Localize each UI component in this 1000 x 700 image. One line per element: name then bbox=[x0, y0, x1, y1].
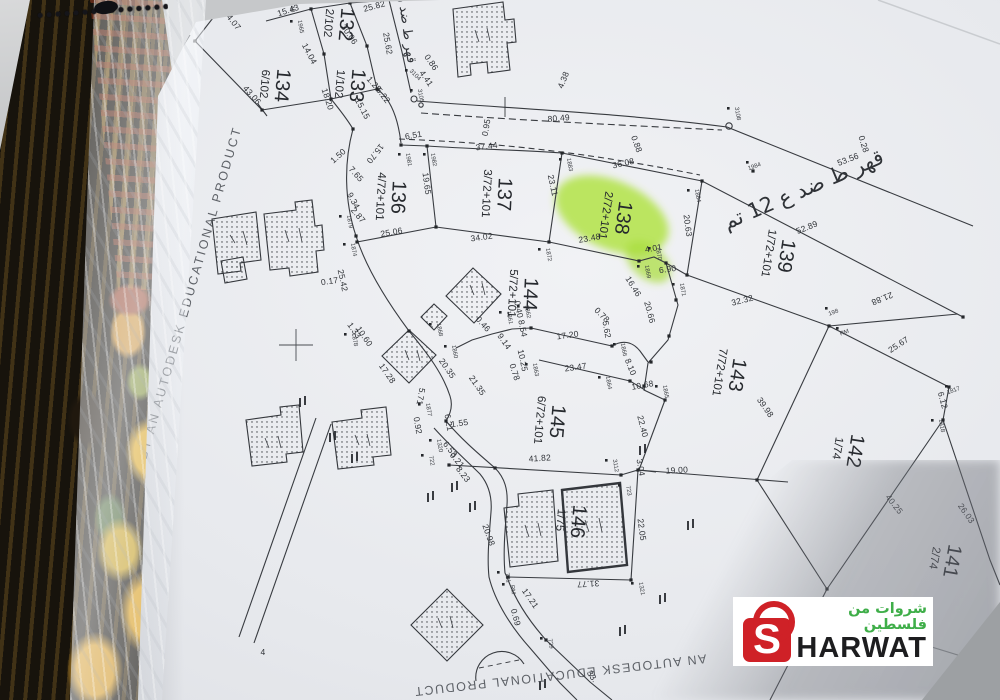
point-label: 723 bbox=[624, 485, 632, 497]
vertex-marker bbox=[687, 189, 690, 192]
dimension-label: 25.82 bbox=[362, 0, 386, 14]
parcel-number: 134 bbox=[270, 68, 295, 103]
dimension-label: 0.92 bbox=[412, 416, 425, 435]
vertex-marker bbox=[434, 225, 437, 228]
building bbox=[221, 257, 247, 283]
vertex-marker bbox=[447, 463, 450, 466]
dimension-label: 8.54 bbox=[516, 319, 529, 338]
point-label: 1877 bbox=[424, 403, 432, 418]
vertex-marker bbox=[309, 7, 312, 10]
vertex-marker bbox=[618, 484, 621, 487]
point-label: 1866 bbox=[619, 343, 627, 358]
parcel-number: 136 bbox=[386, 180, 410, 214]
point-label: 1864 bbox=[604, 376, 612, 391]
vertex-marker bbox=[421, 454, 424, 457]
dimension-label: 19.00 bbox=[665, 464, 688, 475]
vertex-marker bbox=[544, 638, 547, 641]
vertex-marker bbox=[931, 419, 934, 422]
point-label: 1320 bbox=[435, 439, 443, 454]
vertex-marker bbox=[945, 385, 948, 388]
vertex-marker bbox=[339, 215, 342, 218]
dimension-label: 0.88 bbox=[629, 134, 644, 154]
road-label-arabic: قهر ط ضد ر bbox=[394, 0, 418, 64]
parcel-label-134: 1346/102 bbox=[257, 67, 295, 103]
parcel-label-136: 1364/72+101 bbox=[373, 172, 410, 222]
parcel-fraction: 6/102 bbox=[257, 69, 271, 99]
parcel-number: 146 bbox=[566, 504, 591, 539]
dimension-label: 8.10 bbox=[623, 357, 639, 377]
dimension-label: 25.06 bbox=[380, 225, 404, 239]
vertex-marker bbox=[506, 575, 509, 578]
dimension-label: 80.49 bbox=[547, 112, 570, 124]
dimension-label: 22.05 bbox=[635, 518, 648, 542]
vertex-marker bbox=[655, 385, 658, 388]
point-label: 198 bbox=[828, 308, 840, 317]
vertex-marker bbox=[827, 324, 830, 327]
building bbox=[504, 490, 558, 567]
vertex-marker bbox=[410, 89, 413, 92]
vertex-marker bbox=[407, 329, 410, 332]
vertex-marker bbox=[398, 153, 401, 156]
vertex-marker bbox=[540, 637, 543, 640]
building bbox=[446, 268, 501, 323]
dimension-label: 14.04 bbox=[300, 41, 319, 65]
vertex-marker bbox=[629, 578, 632, 581]
parcel-fraction: 4/72+101 bbox=[373, 172, 388, 221]
vertex-marker bbox=[637, 259, 640, 262]
point-label: 1863 bbox=[531, 363, 539, 378]
point-label: 1865 bbox=[661, 385, 669, 400]
parcel-fraction: 5/72+101 bbox=[505, 269, 520, 318]
vertex-marker bbox=[423, 153, 426, 156]
parcel-number: 132 bbox=[334, 7, 359, 42]
vertex-marker bbox=[631, 582, 634, 585]
vertex-marker bbox=[700, 179, 703, 182]
vertex-marker bbox=[649, 360, 652, 363]
photo-of-cadastral-map: 25.8215.4324.0743.0630.0625.6214.0418.20… bbox=[0, 0, 1000, 700]
point-label: 1321 bbox=[637, 582, 645, 597]
dimension-label: 31.77 bbox=[577, 578, 600, 589]
dimension-label: 17.20 bbox=[556, 329, 580, 342]
parcel-fraction: 3/72+101 bbox=[479, 169, 494, 218]
dimension-label: 4.38 bbox=[555, 70, 571, 90]
dimension-label: 0.17 bbox=[320, 275, 339, 287]
parcel-number: 144 bbox=[518, 277, 542, 311]
vertex-marker bbox=[538, 248, 541, 251]
dimension-label: 25.67 bbox=[886, 334, 910, 355]
dimension-label: 39.98 bbox=[755, 395, 776, 419]
point-label: 722 bbox=[427, 455, 435, 467]
dimension-label: 1.50 bbox=[328, 146, 348, 165]
vertex-marker bbox=[344, 333, 347, 336]
dimension-label: 52.89 bbox=[795, 218, 819, 236]
vertex-marker bbox=[648, 247, 651, 250]
vertex-marker bbox=[322, 52, 325, 55]
parcel-fraction: 1/102 bbox=[332, 69, 346, 99]
dimension-label: 15.70 bbox=[365, 142, 387, 166]
vertex-marker bbox=[425, 144, 428, 147]
vertex-marker bbox=[281, 0, 284, 2]
vertex-marker bbox=[947, 385, 950, 388]
grid-cross-mark bbox=[279, 329, 313, 361]
parcel-number: 138 bbox=[610, 200, 636, 236]
point-label: 1871 bbox=[678, 283, 686, 298]
vertex-marker bbox=[399, 143, 402, 146]
vertex-marker bbox=[502, 583, 505, 586]
dimension-label: 34.02 bbox=[470, 231, 494, 244]
vertex-marker bbox=[348, 1, 351, 4]
logo-arabic-tagline: شروات من فلسطين bbox=[789, 601, 927, 633]
parcel-fraction: 2/102 bbox=[321, 8, 335, 38]
vertex-marker bbox=[559, 158, 562, 161]
parcel-label-133: 1331/102 bbox=[332, 67, 370, 103]
vertex-marker bbox=[746, 161, 749, 164]
parcel-label-143: 1437/72+101 bbox=[709, 347, 751, 400]
dimension-label: 4 bbox=[261, 647, 266, 657]
dimension-label: 7.65 bbox=[347, 164, 366, 184]
vertex-marker bbox=[405, 69, 408, 72]
vertex-marker bbox=[351, 127, 354, 130]
vertex-marker bbox=[751, 169, 754, 172]
dimension-label: 20.63 bbox=[681, 214, 694, 238]
vertex-marker bbox=[663, 398, 666, 401]
vertex-marker bbox=[642, 384, 645, 387]
vertex-marker bbox=[598, 376, 601, 379]
dimension-label: 21.88 bbox=[870, 290, 894, 308]
dimension-label: 15.43 bbox=[276, 2, 300, 18]
vertex-marker bbox=[610, 344, 613, 347]
dimension-label: 36.08 bbox=[611, 156, 635, 171]
point-label: 1868 bbox=[435, 323, 443, 338]
sharwat-logo: S شروات من فلسطين HARWAT bbox=[733, 597, 933, 666]
vertex-marker bbox=[444, 345, 447, 348]
dimension-label: 22.40 bbox=[635, 414, 650, 438]
vertex-marker bbox=[664, 261, 667, 264]
parcel-fraction: 1/75 bbox=[553, 508, 567, 531]
vertex-marker bbox=[499, 311, 502, 314]
point-label: 3104 bbox=[408, 68, 422, 82]
parcel-label-132: 1322/102 bbox=[321, 6, 359, 42]
dimension-label: 16.46 bbox=[623, 274, 643, 298]
vertex-marker bbox=[961, 315, 964, 318]
vertex-marker bbox=[605, 459, 608, 462]
point-label: 1872 bbox=[544, 248, 552, 263]
dimension-label: 6.90 bbox=[658, 263, 677, 275]
vertex-marker bbox=[727, 107, 730, 110]
vertex-marker bbox=[355, 240, 358, 243]
point-label: 1879 bbox=[345, 215, 353, 230]
building bbox=[421, 304, 447, 330]
dimension-label: 32.32 bbox=[730, 293, 754, 308]
road-label-arabic: قهر ط ضد ع 12 تم bbox=[719, 145, 887, 235]
parcel-label-146: 1461/75 bbox=[553, 503, 591, 539]
vertex-marker bbox=[619, 473, 622, 476]
vertex-marker bbox=[674, 298, 677, 301]
dimension-label: 20.98 bbox=[480, 523, 497, 547]
vertex-marker bbox=[636, 468, 639, 471]
vertex-marker bbox=[755, 478, 758, 481]
point-label: 3108 bbox=[733, 107, 741, 122]
vertex-marker bbox=[628, 379, 631, 382]
vertex-marker bbox=[418, 403, 421, 406]
point-label: 1860 bbox=[450, 345, 458, 360]
logo-wordmark: HARWAT bbox=[796, 633, 927, 663]
point-label: 1982 bbox=[429, 153, 437, 168]
parcel-number: 137 bbox=[492, 177, 516, 211]
vertex-marker bbox=[493, 466, 496, 469]
dimension-label: 20.35 bbox=[437, 356, 458, 380]
vertex-marker bbox=[260, 108, 263, 111]
vertex-marker bbox=[941, 418, 944, 421]
dimension-label: 19.65 bbox=[420, 172, 433, 196]
point-label: 1984 bbox=[747, 162, 762, 172]
vertex-marker bbox=[560, 151, 563, 154]
vertex-marker bbox=[825, 307, 828, 310]
point-label: 1965 bbox=[296, 20, 304, 35]
vertex-marker bbox=[354, 234, 357, 237]
parcel-label-145: 1456/72+101 bbox=[531, 395, 570, 446]
building bbox=[332, 407, 391, 469]
vertex-marker bbox=[429, 439, 432, 442]
dimension-label: 20.66 bbox=[642, 300, 657, 324]
vertex-marker bbox=[365, 44, 368, 47]
vertex-marker bbox=[375, 87, 378, 90]
dimension-label: 25.62 bbox=[381, 32, 395, 56]
building bbox=[453, 2, 516, 77]
dimension-label: 0.95 bbox=[480, 118, 493, 137]
parcel-label-137: 1373/72+101 bbox=[479, 169, 516, 219]
dimension-label: 9.14 bbox=[495, 331, 513, 351]
vertex-marker bbox=[497, 571, 500, 574]
parcel-number: 145 bbox=[545, 404, 570, 439]
dimension-label: 23.47 bbox=[564, 361, 588, 374]
building bbox=[246, 405, 303, 466]
dimension-label: 17.21 bbox=[520, 586, 541, 610]
vertex-marker bbox=[672, 283, 675, 286]
point-label: 1883 bbox=[565, 158, 573, 173]
vertex-marker bbox=[667, 334, 670, 337]
vertex-marker bbox=[836, 327, 839, 330]
vertex-marker bbox=[444, 419, 447, 422]
vertex-marker bbox=[529, 326, 532, 329]
dimension-label: 41.82 bbox=[528, 452, 551, 464]
parcel-label-139: 1391/72+101 bbox=[758, 228, 800, 281]
parcel-fraction: 1/74 bbox=[829, 436, 844, 461]
shopping-bag-icon: S bbox=[741, 602, 797, 662]
logo-text: شروات من فلسطين HARWAT bbox=[789, 601, 927, 663]
building bbox=[264, 200, 324, 276]
sheet-edge-line bbox=[878, 0, 1000, 44]
dimension-label: 5.62 bbox=[601, 320, 614, 339]
vertex-marker bbox=[525, 363, 528, 366]
point-label: 1981 bbox=[404, 153, 412, 168]
parcel-number: 133 bbox=[345, 68, 370, 103]
point-label: 1878 bbox=[350, 333, 358, 348]
vertex-marker bbox=[290, 20, 293, 23]
vertex-marker bbox=[685, 273, 688, 276]
point-label: 1874 bbox=[349, 243, 357, 258]
dimension-label: 24.07 bbox=[222, 8, 244, 32]
building bbox=[411, 589, 483, 661]
dimension-label: 3.04 bbox=[635, 458, 648, 477]
dimension-label: 0.46 bbox=[474, 314, 493, 334]
point-label: 3112 bbox=[611, 459, 619, 473]
vertex-marker bbox=[329, 97, 332, 100]
point-label: 1884 bbox=[693, 189, 701, 204]
dimension-label: 21.35 bbox=[467, 373, 488, 397]
vertex-marker bbox=[429, 323, 432, 326]
point-label: RM bbox=[508, 585, 516, 595]
vertex-marker bbox=[637, 265, 640, 268]
dimension-label: 37.44 bbox=[475, 140, 498, 153]
logo-s-letter: S bbox=[743, 614, 791, 662]
vertex-marker bbox=[343, 243, 346, 246]
vertex-marker bbox=[547, 240, 550, 243]
